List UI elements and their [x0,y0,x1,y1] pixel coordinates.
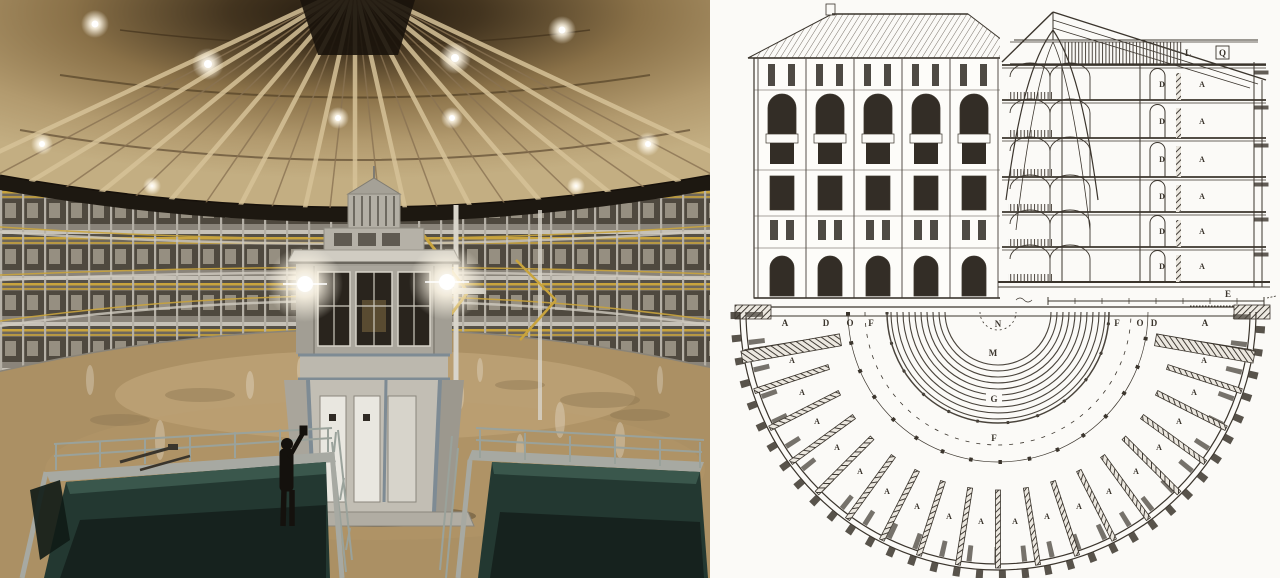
dome-apex-opening [300,0,415,55]
svg-text:A: A [834,443,840,452]
panopticon-drawing: L Q [710,0,1280,578]
dome [0,0,710,208]
svg-text:G: G [990,394,997,404]
section-letter-L: L [1185,48,1191,58]
svg-text:A: A [1199,262,1205,271]
elevation-drawing [748,4,1002,298]
svg-text:A: A [914,502,920,511]
svg-text:F: F [991,433,997,443]
panopticon-drawing-svg: L Q [710,0,1280,578]
section-letter-E: E [1225,289,1231,299]
svg-text:A: A [946,512,952,521]
svg-text:D: D [1159,227,1165,236]
svg-text:A: A [1199,155,1205,164]
svg-text:A: A [884,487,890,496]
svg-text:A: A [978,517,984,526]
prison-photo-svg [0,0,710,578]
svg-text:D: D [1159,262,1165,271]
plan-letter-N: N [995,319,1002,329]
svg-text:F: F [868,318,874,328]
svg-text:A: A [789,356,795,365]
svg-text:A: A [1156,443,1162,452]
svg-text:A: A [1191,388,1197,397]
section-drawing: L Q [998,0,1280,306]
svg-text:A: A [1199,80,1205,89]
svg-text:A: A [857,467,863,476]
svg-text:A: A [1106,487,1112,496]
svg-text:A: A [814,417,820,426]
prison-photo [0,0,710,578]
svg-text:A: A [1199,117,1205,126]
svg-text:O: O [1136,318,1143,328]
svg-text:D: D [823,318,830,328]
svg-text:F: F [1114,318,1120,328]
svg-text:A: A [1199,192,1205,201]
svg-text:M: M [989,348,998,358]
svg-text:A: A [782,318,789,328]
svg-text:O: O [846,318,853,328]
svg-text:D: D [1159,155,1165,164]
svg-text:D: D [1151,318,1158,328]
tower-mid-band [298,354,450,380]
panopticon-composite: L Q [0,0,1280,578]
svg-text:A: A [1199,227,1205,236]
svg-text:D: D [1159,117,1165,126]
svg-text:D: D [1159,80,1165,89]
svg-text:A: A [1176,417,1182,426]
svg-text:D: D [1159,192,1165,201]
svg-text:A: A [1133,467,1139,476]
svg-text:A: A [1012,517,1018,526]
svg-text:A: A [1076,502,1082,511]
svg-text:A: A [799,388,805,397]
section-letter-Q: Q [1219,48,1226,58]
tower-door [354,396,380,502]
svg-text:A: A [1202,318,1209,328]
svg-text:A: A [1201,356,1207,365]
svg-text:A: A [1044,512,1050,521]
